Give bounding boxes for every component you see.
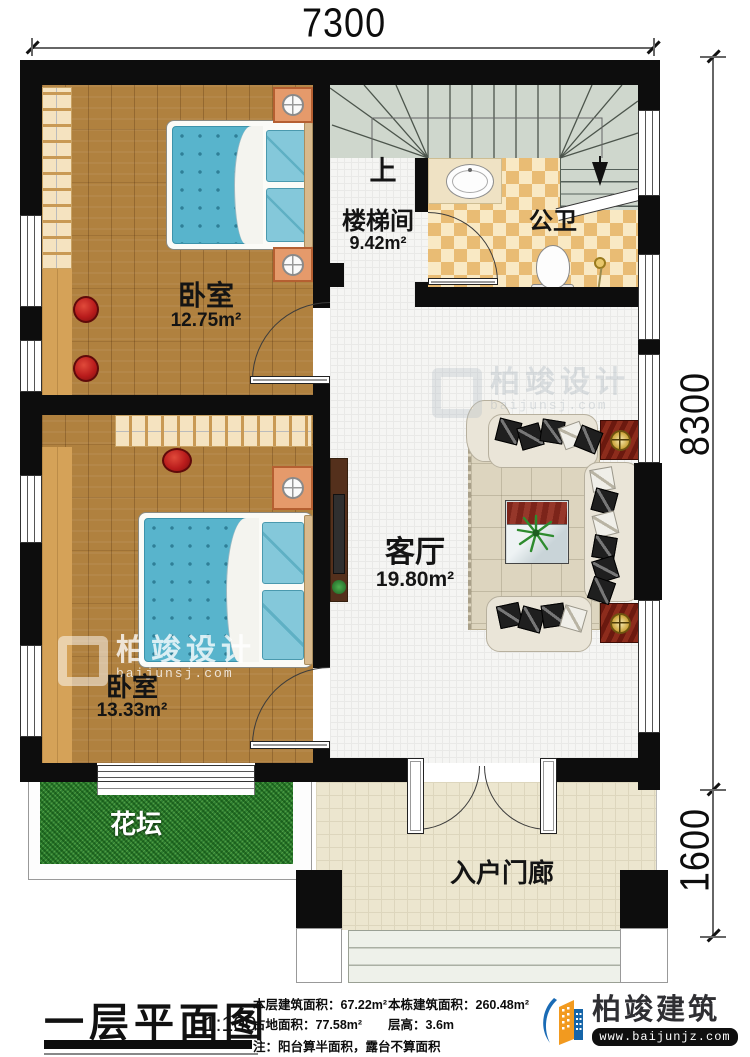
window-bedroom2-left bbox=[20, 645, 42, 737]
bedroom1-door bbox=[250, 376, 330, 384]
sink-icon bbox=[446, 164, 494, 199]
watermark-logo-icon bbox=[432, 368, 482, 418]
bedroom2-nightstand-lamp bbox=[272, 466, 313, 510]
stair-up-label: 上 bbox=[366, 158, 400, 186]
dimension-line-top bbox=[32, 47, 654, 49]
porch-pillar-base bbox=[296, 928, 342, 983]
bedroom1-label: 卧室 12.75m² bbox=[150, 282, 262, 330]
porch-label: 入户门廊 bbox=[444, 860, 560, 887]
porch-pillar bbox=[296, 870, 342, 928]
entry-door-left bbox=[407, 758, 424, 834]
tv-icon bbox=[333, 494, 345, 574]
dimension-ext bbox=[700, 936, 726, 938]
bedroom2-pillow bbox=[262, 522, 304, 584]
bedroom1-wardrobe bbox=[42, 87, 72, 269]
room-area: 19.80m² bbox=[372, 569, 458, 590]
watermark-name: 柏竣设计 bbox=[116, 636, 256, 666]
bedroom1-nightstand-lamp bbox=[273, 87, 313, 123]
room-area: 13.33m² bbox=[76, 701, 188, 720]
bathroom-door bbox=[428, 278, 498, 285]
bedroom1-stool bbox=[73, 355, 99, 382]
porch-steps bbox=[348, 930, 623, 983]
wall-bottom-bedroom2 bbox=[255, 763, 330, 782]
window-bathroom-right bbox=[638, 254, 660, 340]
stat-value: 3.6m bbox=[426, 1018, 455, 1032]
stat-total-area: 本栋建筑面积：260.48m² bbox=[388, 994, 529, 1013]
dimension-ext bbox=[700, 56, 726, 58]
stair-down-arrow bbox=[592, 162, 608, 186]
stat-label: 占地面积： bbox=[253, 1018, 316, 1032]
watermark-name: 柏竣设计 bbox=[490, 368, 630, 398]
wall-bathroom-left bbox=[415, 158, 428, 212]
bedroom2-door bbox=[250, 741, 330, 749]
bedroom2-wardrobe bbox=[115, 415, 312, 447]
bedroom2-stool bbox=[162, 448, 192, 473]
stairwell-label: 楼梯间 9.42m² bbox=[332, 210, 424, 253]
bedroom1-sheet-fold bbox=[234, 126, 263, 244]
stat-value: 67.22m² bbox=[341, 998, 388, 1012]
wall-bathroom-bottom bbox=[415, 287, 640, 307]
window-sill bbox=[97, 782, 255, 795]
window-living-right bbox=[638, 600, 660, 733]
bedroom2-headboard bbox=[304, 515, 313, 665]
wall-right bbox=[638, 60, 660, 110]
plan-note: 注：阳台算半面积，露台不算面积 bbox=[253, 1036, 441, 1055]
entry-door-right bbox=[540, 758, 557, 834]
dimension-line-right bbox=[712, 57, 714, 790]
dimension-ext bbox=[653, 38, 655, 56]
plan-scale: 1:100 bbox=[204, 1013, 257, 1037]
dimension-ext bbox=[31, 38, 33, 56]
room-area: 9.42m² bbox=[332, 234, 424, 252]
room-name: 楼梯间 bbox=[332, 210, 424, 234]
window-bedroom1-left bbox=[20, 215, 42, 307]
bedroom1-headboard bbox=[304, 122, 313, 248]
title-underline-thin bbox=[44, 1053, 258, 1055]
stair-arrow-stem bbox=[599, 156, 601, 164]
room-name: 卧室 bbox=[76, 674, 188, 701]
bedroom1-pillow bbox=[266, 188, 306, 242]
wall-right-pier bbox=[634, 463, 662, 600]
bedroom1-stool bbox=[73, 296, 99, 323]
flower-bed-label: 花坛 bbox=[104, 804, 168, 841]
bedroom2-window-nook-floor bbox=[42, 447, 72, 763]
room-area: 12.75m² bbox=[150, 311, 262, 330]
porch-pillar bbox=[620, 870, 668, 928]
bathroom-label: 公卫 bbox=[522, 210, 584, 234]
window-stair-right bbox=[638, 110, 660, 196]
window-bedroom2-bottom bbox=[97, 765, 255, 782]
corner-side-table-lamp bbox=[600, 603, 640, 643]
wall-bottom-bedroom2 bbox=[20, 763, 97, 782]
wall-stair-pier bbox=[328, 263, 344, 287]
living-room-label: 客厅 19.80m² bbox=[372, 538, 458, 590]
wall-right bbox=[638, 340, 660, 354]
bedroom2-label: 卧室 13.33m² bbox=[76, 674, 188, 720]
brand-logo-icon bbox=[538, 993, 588, 1047]
dimension-line-porch bbox=[712, 790, 714, 937]
watermark-url: baijunsj.com bbox=[490, 398, 630, 413]
stat-label: 层高： bbox=[388, 1018, 426, 1032]
stat-value: 77.58m² bbox=[316, 1018, 363, 1032]
brand-block: 柏竣建筑 www.baijunjz.com bbox=[592, 996, 738, 1046]
brand-name: 柏竣建筑 bbox=[592, 996, 738, 1025]
stat-floor-height: 层高：3.6m bbox=[388, 1014, 454, 1033]
window-left-small bbox=[20, 340, 42, 392]
bedroom1-pillow bbox=[266, 130, 306, 182]
wall-bottom-living bbox=[330, 758, 407, 782]
wall-left bbox=[20, 307, 42, 340]
porch-floor bbox=[316, 782, 657, 930]
floor-plan-canvas: 柏竣设计 baijunsj.com 柏竣设计 baijunsj.com 卧室 1… bbox=[0, 0, 750, 1057]
brand-website: www.baijunjz.com bbox=[592, 1028, 738, 1046]
toilet-icon bbox=[536, 245, 570, 289]
watermark-text: 柏竣设计 baijunsj.com bbox=[490, 368, 630, 413]
plant-pot-icon bbox=[332, 580, 346, 594]
stat-value: 260.48m² bbox=[476, 998, 530, 1012]
window-living-right bbox=[638, 354, 660, 463]
dimension-width: 7300 bbox=[302, 0, 386, 47]
wall-right bbox=[638, 196, 660, 254]
bedroom1-window-nook-floor bbox=[42, 268, 72, 395]
wall-bottom-living bbox=[556, 758, 660, 782]
bedroom1-nightstand-lamp bbox=[273, 247, 313, 282]
room-name: 客厅 bbox=[372, 538, 458, 569]
watermark: 柏竣设计 baijunsj.com bbox=[432, 368, 630, 418]
wall-top bbox=[20, 60, 660, 85]
room-name: 卧室 bbox=[150, 282, 262, 311]
wall-left bbox=[20, 543, 42, 645]
title-underline-thick bbox=[44, 1040, 252, 1049]
window-bedroom2-left bbox=[20, 475, 42, 543]
porch-pillar-base bbox=[620, 928, 668, 983]
wall-left bbox=[20, 60, 42, 215]
stat-floor-area: 本层建筑面积：67.22m² bbox=[253, 994, 387, 1013]
corner-side-table-lamp bbox=[600, 420, 640, 460]
stat-label: 本层建筑面积： bbox=[253, 998, 341, 1012]
stat-land-area: 占地面积：77.58m² bbox=[253, 1014, 362, 1033]
wall-bedroom-separator bbox=[20, 395, 330, 415]
bedroom2-pillow bbox=[262, 590, 304, 660]
stat-label: 本栋建筑面积： bbox=[388, 998, 476, 1012]
coffee-table-plant-icon bbox=[515, 512, 557, 554]
wall-interior-vertical bbox=[313, 380, 330, 668]
